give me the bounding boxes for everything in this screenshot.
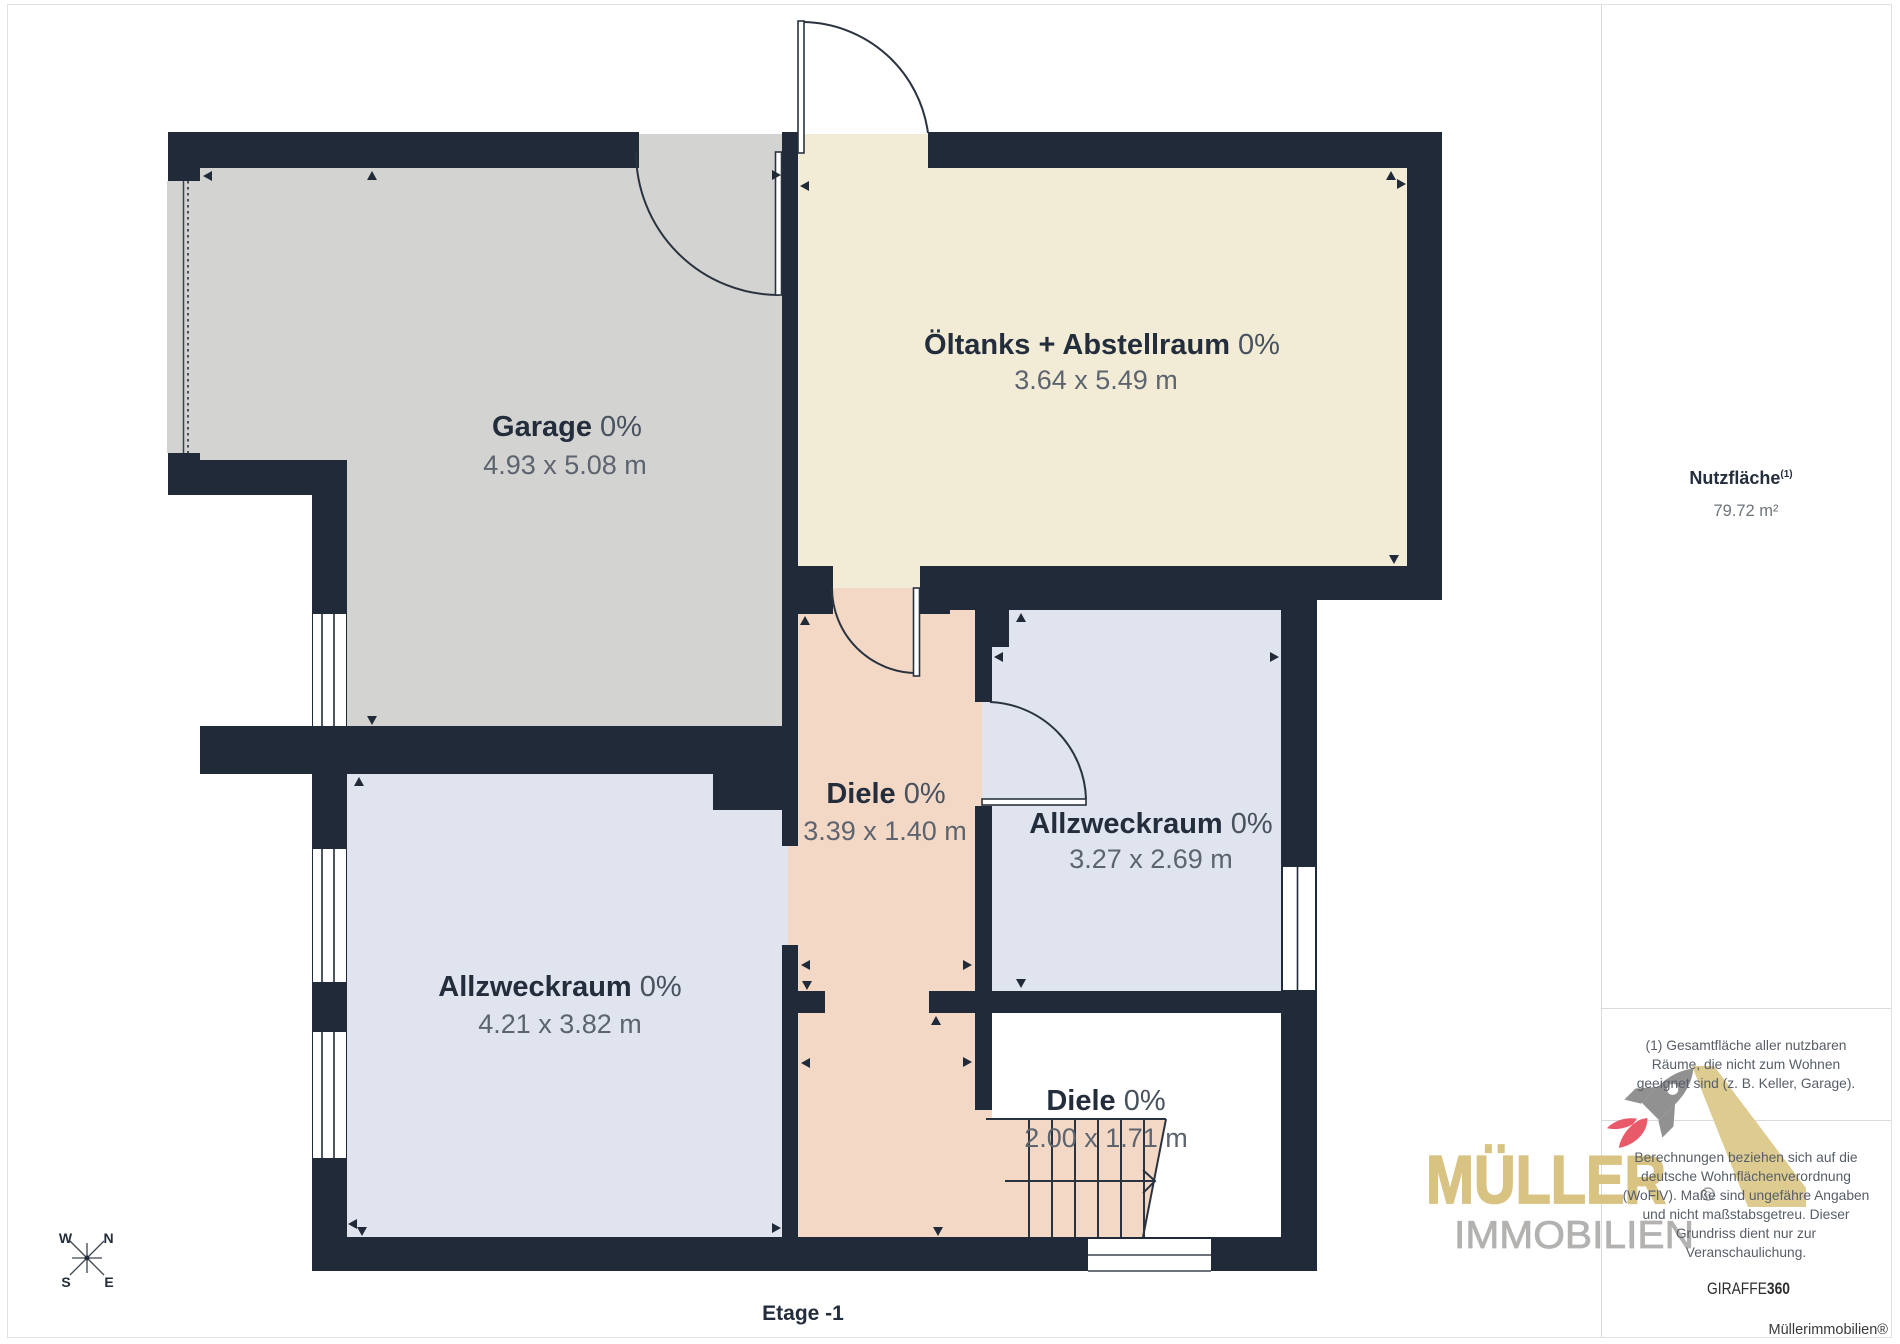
svg-text:Allzweckraum 0%: Allzweckraum 0% <box>1029 808 1272 840</box>
svg-text:Grundriss dient nur zur: Grundriss dient nur zur <box>1676 1226 1817 1241</box>
svg-text:Öltanks + Abstellraum 0%: Öltanks + Abstellraum 0% <box>924 328 1280 361</box>
svg-text:S: S <box>61 1274 70 1290</box>
svg-text:4.21 x 3.82 m: 4.21 x 3.82 m <box>478 1009 642 1039</box>
svg-text:(1) Gesamtfläche aller nutzbar: (1) Gesamtfläche aller nutzbaren <box>1646 1038 1847 1053</box>
svg-text:Nutzfläche(1): Nutzfläche(1) <box>1689 468 1792 488</box>
svg-text:GIRAFFE360: GIRAFFE360 <box>1707 1280 1790 1298</box>
svg-text:Müllerimmobilien®: Müllerimmobilien® <box>1769 1322 1889 1338</box>
svg-text:4.93 x 5.08 m: 4.93 x 5.08 m <box>483 450 647 480</box>
svg-text:(WoFlV). Maße sind ungefähre A: (WoFlV). Maße sind ungefähre Angaben <box>1623 1188 1870 1203</box>
svg-text:3.39 x 1.40 m: 3.39 x 1.40 m <box>803 816 967 846</box>
svg-text:W: W <box>59 1230 73 1246</box>
svg-text:Veranschaulichung.: Veranschaulichung. <box>1686 1245 1806 1260</box>
svg-text:Räume, die nicht zum Wohnen: Räume, die nicht zum Wohnen <box>1652 1057 1840 1072</box>
svg-text:MÜLLER: MÜLLER <box>1426 1142 1666 1218</box>
svg-text:E: E <box>104 1274 113 1290</box>
svg-text:deutsche Wohnflächenverordnung: deutsche Wohnflächenverordnung <box>1641 1169 1851 1184</box>
svg-text:geeignet sind (z. B. Keller, G: geeignet sind (z. B. Keller, Garage). <box>1637 1076 1856 1091</box>
svg-text:Diele 0%: Diele 0% <box>826 778 945 810</box>
svg-text:Garage 0%: Garage 0% <box>492 411 642 443</box>
svg-text:Berechnungen beziehen sich auf: Berechnungen beziehen sich auf die <box>1634 1150 1858 1165</box>
svg-text:3.64 x 5.49 m: 3.64 x 5.49 m <box>1014 365 1178 395</box>
svg-text:und nicht maßstabsgetreu. Dies: und nicht maßstabsgetreu. Dieser <box>1642 1207 1849 1222</box>
svg-text:79.72 m²: 79.72 m² <box>1713 502 1779 520</box>
svg-text:Allzweckraum 0%: Allzweckraum 0% <box>438 971 681 1003</box>
svg-text:3.27 x 2.69 m: 3.27 x 2.69 m <box>1069 844 1233 874</box>
svg-text:Diele 0%: Diele 0% <box>1046 1085 1165 1117</box>
svg-text:N: N <box>103 1230 113 1246</box>
svg-text:Etage -1: Etage -1 <box>762 1302 844 1325</box>
svg-text:2.00 x 1.71 m: 2.00 x 1.71 m <box>1024 1123 1188 1153</box>
